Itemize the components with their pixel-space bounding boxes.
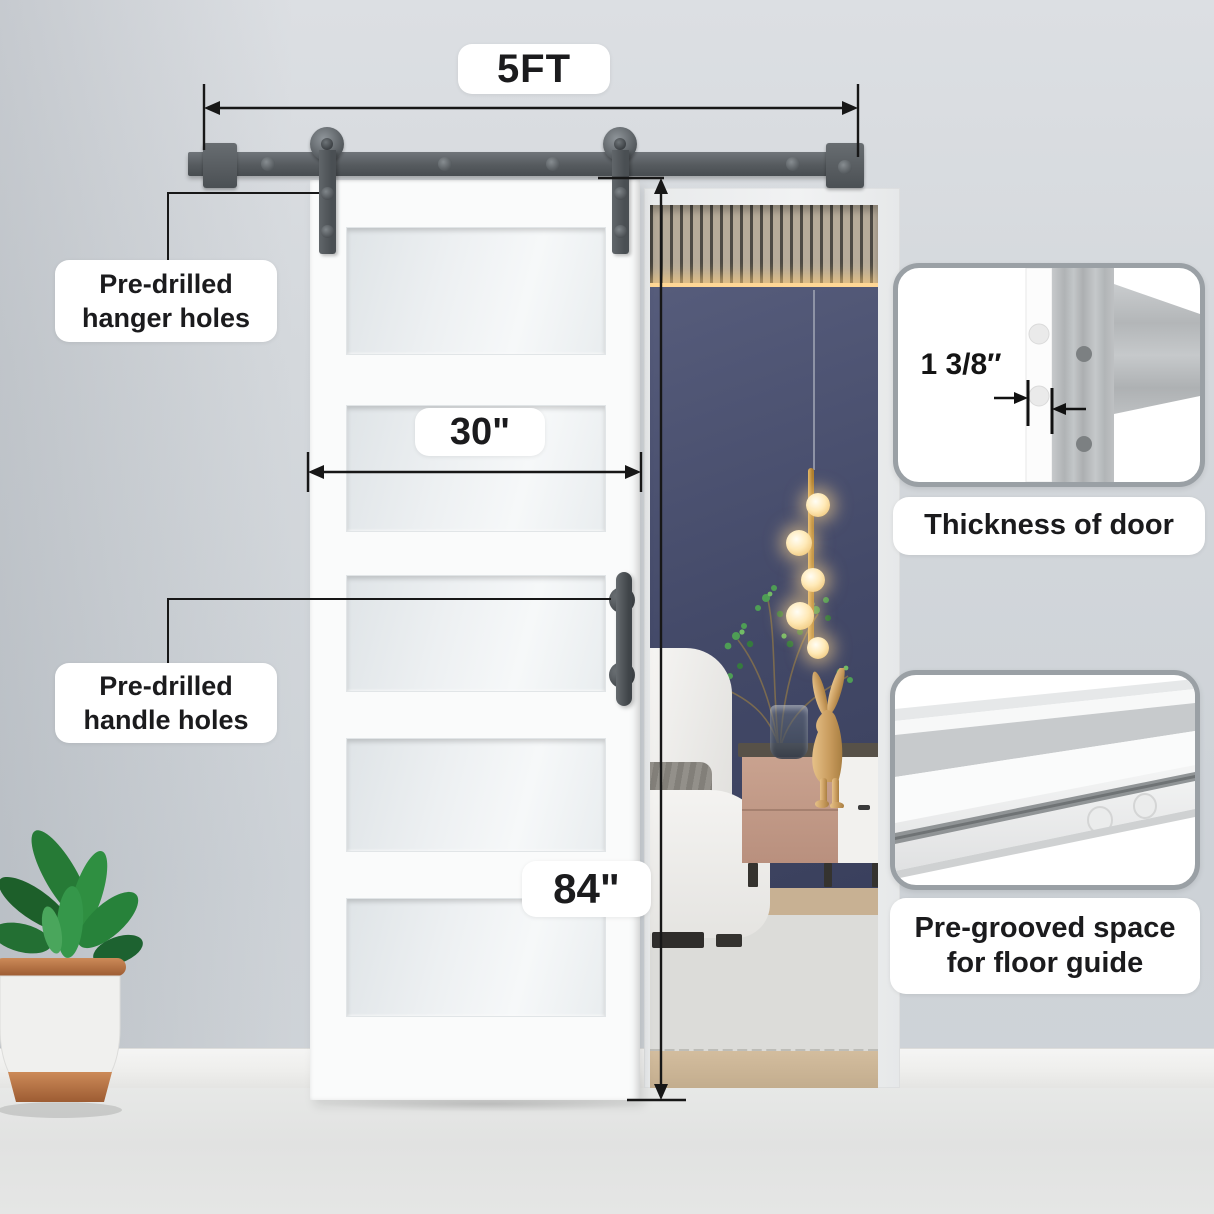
- track-width-label: 5FT: [458, 44, 610, 94]
- hanger-bolt: [321, 187, 334, 200]
- nightstand-leg: [872, 863, 878, 887]
- plant-shadow: [0, 1102, 122, 1118]
- sliding-track-rail: [188, 152, 862, 176]
- floor-plant: [0, 810, 156, 1120]
- track-bolt: [546, 157, 560, 171]
- door-handle: [616, 572, 632, 706]
- track-bolt: [838, 160, 852, 174]
- pendant-globe: [806, 493, 830, 517]
- bedroom-wood-floor-near: [650, 1051, 878, 1088]
- door-height-label: 84": [522, 861, 651, 917]
- doorway-opening: [650, 205, 878, 1088]
- pendant-cable: [813, 290, 815, 470]
- pendant-globe: [801, 568, 825, 592]
- barn-door: [310, 180, 640, 1100]
- wood-slat-panel: [650, 205, 878, 285]
- hanger-pivot-bolt: [614, 138, 626, 150]
- nightstand-handle: [858, 805, 870, 810]
- rabbit-shape: [809, 668, 848, 808]
- frosted-glass-panel-4: [346, 738, 606, 852]
- hanger-bolt: [321, 225, 334, 238]
- frosted-glass-panel-1: [346, 227, 606, 355]
- door-width-label: 30": [415, 408, 545, 456]
- product-infographic: 5FT 30" 84" Pre-drilled hanger holes Pre…: [0, 0, 1214, 1214]
- floor-plant-pot: [0, 958, 126, 1102]
- bed-leg: [652, 932, 704, 948]
- groove-caption: Pre-grooved space for floor guide: [890, 898, 1200, 994]
- pendant-globe: [807, 637, 829, 659]
- nightstand-drawer-divider: [742, 809, 838, 811]
- pendant-globe: [786, 602, 814, 630]
- track-bolt: [786, 157, 800, 171]
- bed-leg: [716, 934, 742, 947]
- hanger-bolt: [614, 225, 627, 238]
- track-bolt: [261, 157, 275, 171]
- thickness-dimension-label: 1 3/8″: [903, 348, 1019, 382]
- nightstand-leg: [824, 863, 832, 887]
- frosted-glass-panel-3: [346, 575, 606, 692]
- hanger-bolt: [614, 187, 627, 200]
- door-bottom-illustration: [895, 675, 1195, 885]
- handle-holes-callout: Pre-drilled handle holes: [55, 663, 277, 743]
- hanger-pivot-bolt: [321, 138, 333, 150]
- track-bolt: [438, 157, 452, 171]
- thickness-caption: Thickness of door: [893, 497, 1205, 555]
- hanger-strap-left: [319, 150, 336, 254]
- hanger-strap-right: [612, 150, 629, 254]
- hanger-holes-callout: Pre-drilled hanger holes: [55, 260, 277, 342]
- nightstand-leg: [748, 863, 758, 887]
- floor-plant-leaves: [0, 823, 147, 971]
- rabbit-figurine: [802, 668, 858, 808]
- track-end-stop-left: [203, 143, 237, 188]
- groove-inset-panel: [890, 670, 1200, 890]
- pendant-globe: [786, 530, 812, 556]
